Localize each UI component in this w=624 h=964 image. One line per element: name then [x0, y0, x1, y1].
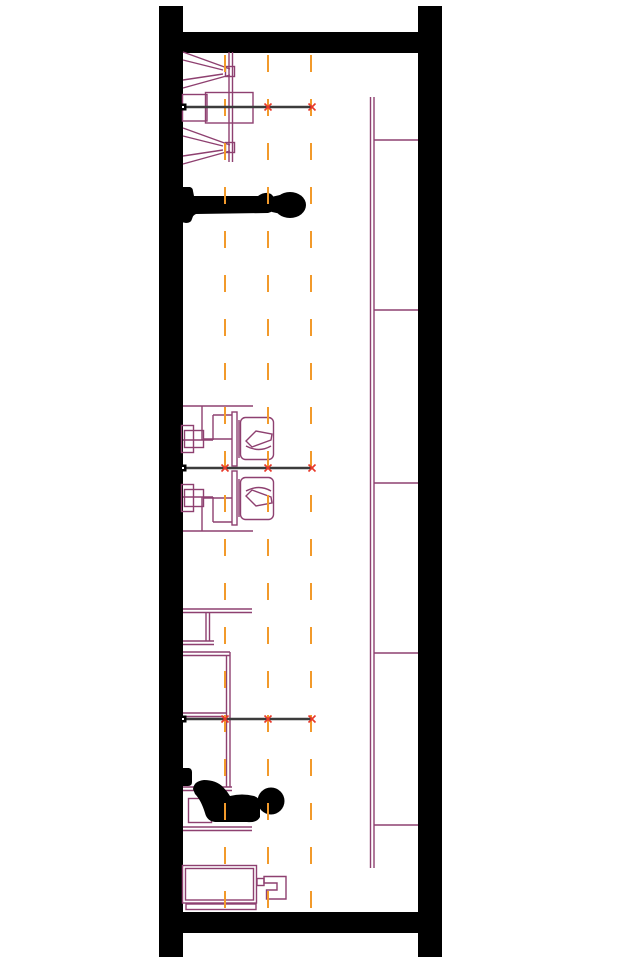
architectural-section-drawing — [0, 0, 624, 964]
exercise-station-mirrored — [182, 471, 274, 531]
top-beam — [159, 32, 442, 53]
trainer-v-arm-lower — [183, 128, 230, 164]
cabinet-with-hook — [183, 866, 287, 910]
section-line-end-dot — [182, 718, 184, 720]
hook-nub — [257, 879, 264, 886]
cabinet-inner — [186, 869, 254, 901]
rack-long-top — [183, 652, 230, 656]
cabinet-outer — [183, 866, 257, 904]
station-wall-box — [182, 426, 194, 453]
person-lying-head — [274, 192, 306, 218]
section-line-end-dot — [182, 467, 184, 469]
bench-base — [183, 827, 252, 831]
equipment-layer — [182, 52, 287, 910]
trainer-v-arm-upper — [183, 52, 230, 88]
person-seated-head — [258, 788, 285, 815]
station-press-bar — [232, 412, 237, 466]
exercise-station — [182, 406, 274, 466]
person-seated — [183, 768, 285, 822]
rack-short-top — [183, 609, 252, 613]
station-seat-pad — [246, 431, 272, 447]
ladder — [371, 97, 419, 868]
rack-short — [183, 609, 252, 645]
rack-short-bottom — [183, 641, 214, 645]
left-column — [159, 6, 183, 957]
right-column — [418, 6, 442, 957]
structure-walls — [159, 6, 442, 957]
person-lying — [180, 187, 306, 223]
person-seated-feet — [183, 768, 192, 786]
bottom-beam — [159, 912, 442, 933]
grid-dashed-lines — [225, 55, 311, 911]
rack-short-leg — [206, 612, 210, 641]
rack-long-mid — [183, 713, 226, 717]
person-lying-body — [180, 187, 275, 223]
station-seat-curve — [246, 446, 271, 450]
cabinet-tray — [186, 904, 256, 910]
drawing-svg — [0, 0, 624, 964]
section-line-end-dot — [182, 106, 184, 108]
